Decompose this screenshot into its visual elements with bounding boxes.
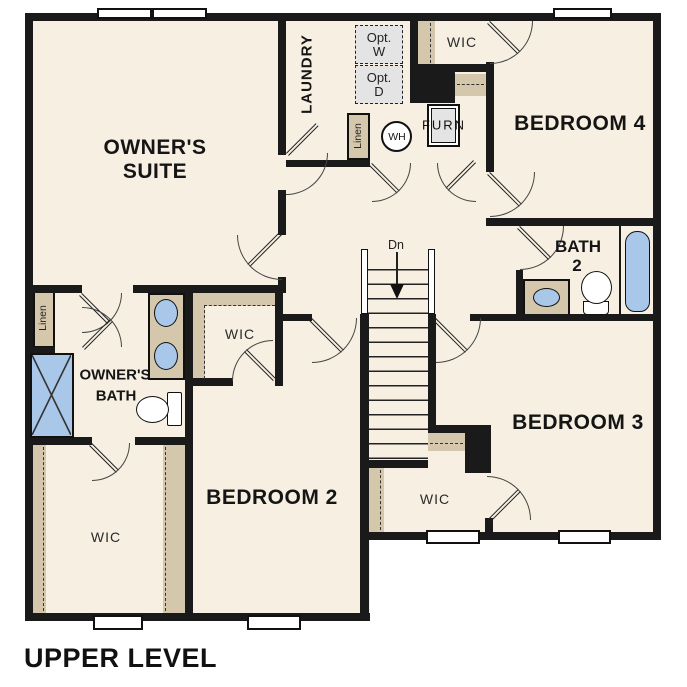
wall	[428, 425, 465, 433]
floor-plan: OWNER'S SUITE LAUNDRY BEDROOM 4 BATH 2 B…	[0, 0, 687, 687]
water-heater-label: WH	[388, 131, 406, 143]
wic-bedroom4-label: WIC	[447, 34, 477, 50]
opt-washer-label: Opt.	[367, 31, 392, 45]
wall	[25, 285, 82, 293]
wall	[516, 270, 523, 318]
wall	[278, 190, 286, 235]
linen-laundry-label: Linen	[352, 123, 364, 149]
closet-rod-dash	[43, 447, 44, 611]
linen-owners-label: Linen	[37, 305, 49, 331]
wall	[360, 460, 428, 468]
shower	[30, 353, 74, 438]
stair-rail	[428, 249, 435, 314]
bedroom2-label: BEDROOM 2	[206, 486, 338, 510]
toilet-tank	[167, 392, 182, 426]
opt-washer-label: W	[373, 45, 385, 59]
closet-shelf	[163, 445, 185, 613]
wall	[278, 13, 286, 155]
wall	[185, 378, 233, 386]
sink	[154, 342, 178, 370]
bedroom3-label: BEDROOM 3	[512, 411, 644, 435]
owners-bath-label: BATH	[96, 388, 137, 405]
wall	[410, 13, 418, 70]
owners-bath-label: OWNER'S	[79, 367, 150, 384]
closet-shelf	[368, 468, 384, 532]
wall	[25, 613, 370, 621]
bedroom4-label: BEDROOM 4	[514, 112, 646, 136]
wall	[360, 532, 661, 540]
floor-area-lower-left	[25, 435, 370, 621]
toilet-bowl	[136, 396, 169, 423]
closet-rod-dash	[430, 23, 431, 63]
owners-suite-label: OWNER'S	[104, 136, 207, 160]
closet-shelf	[418, 21, 435, 64]
wic-bedroom3-label: WIC	[420, 491, 450, 507]
window	[97, 8, 152, 19]
bathtub	[625, 231, 650, 312]
bath2-label: 2	[572, 256, 581, 276]
wall-divider	[619, 226, 621, 318]
laundry-label: LAUNDRY	[299, 34, 316, 114]
closet-shelf	[455, 74, 486, 96]
window	[426, 530, 480, 544]
sink	[533, 288, 560, 307]
opt-dryer-label: D	[374, 85, 383, 99]
window	[247, 615, 301, 630]
wall	[133, 285, 286, 293]
wall-chase	[465, 425, 491, 473]
window	[553, 8, 612, 19]
sink	[154, 299, 178, 327]
window	[93, 615, 143, 630]
page-title: UPPER LEVEL	[24, 643, 217, 674]
wall	[275, 285, 283, 386]
wall	[277, 314, 312, 321]
stairs-down-label: Dn	[388, 238, 404, 252]
closet-rod-dash	[380, 470, 381, 530]
wic-owners-label: WIC	[225, 326, 255, 342]
wall	[470, 314, 661, 321]
closet-rod-dash	[430, 443, 463, 444]
shower-x-icon	[32, 355, 71, 435]
closet-shelf	[33, 445, 46, 613]
furnace-label: FURN	[422, 118, 466, 133]
window	[152, 8, 207, 19]
wall	[486, 218, 661, 226]
wall	[428, 314, 436, 425]
stair-rail	[361, 249, 368, 314]
window	[558, 530, 611, 544]
wall	[25, 13, 33, 621]
closet-rod-dash	[457, 84, 484, 85]
toilet-bowl	[581, 271, 612, 304]
closet-shelf	[428, 433, 465, 451]
bath2-label: BATH	[555, 237, 601, 257]
down-arrow-icon	[390, 284, 404, 299]
wall	[486, 62, 494, 172]
wic-lower-left-label: WIC	[91, 529, 121, 545]
wall	[185, 285, 193, 621]
stair-divider	[396, 252, 398, 285]
closet-rod-dash	[165, 447, 166, 611]
owners-suite-label: SUITE	[123, 160, 187, 184]
wall	[653, 13, 661, 540]
opt-dryer-label: Opt.	[367, 71, 392, 85]
